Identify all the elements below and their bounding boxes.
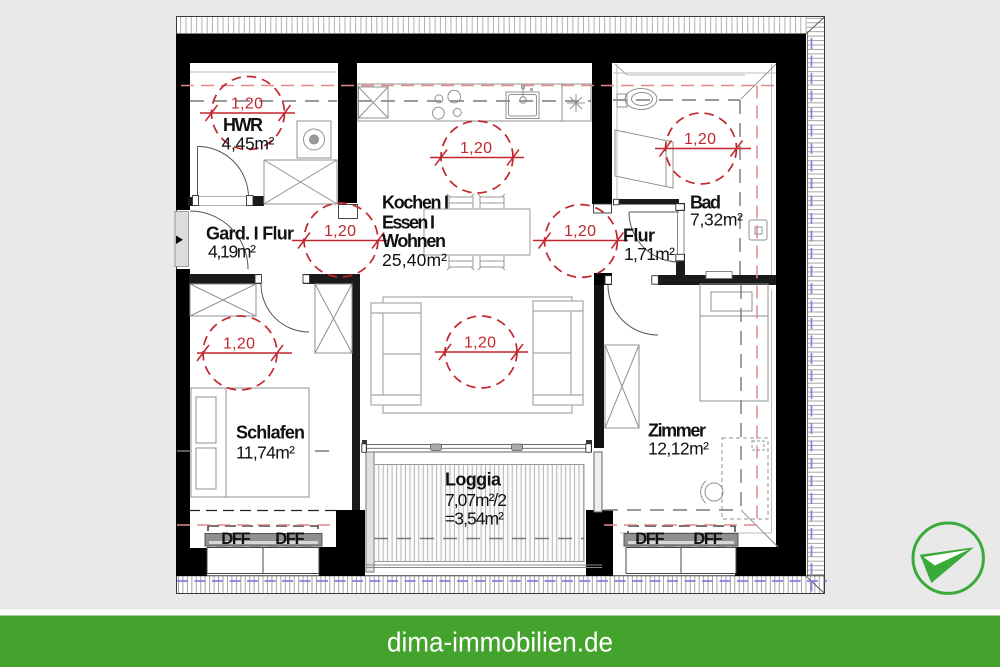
svg-text:Essen I: Essen I — [382, 213, 435, 233]
svg-text:1,71m²: 1,71m² — [624, 244, 675, 264]
svg-text:1,20: 1,20 — [684, 131, 716, 148]
svg-text:11,74m²: 11,74m² — [236, 443, 295, 463]
svg-text:7,32m²: 7,32m² — [690, 210, 743, 230]
svg-text:4,19m²: 4,19m² — [208, 242, 256, 262]
svg-text:Flur: Flur — [623, 226, 655, 246]
svg-text:Gard. I Flur: Gard. I Flur — [206, 224, 294, 244]
svg-text:1,20: 1,20 — [564, 223, 596, 240]
svg-text:=3,54m²: =3,54m² — [445, 509, 504, 529]
svg-text:Zimmer: Zimmer — [648, 421, 706, 441]
svg-text:DFF: DFF — [275, 530, 305, 548]
svg-text:DFF: DFF — [693, 530, 723, 548]
svg-text:25,40m²: 25,40m² — [382, 250, 447, 270]
svg-text:Schlafen: Schlafen — [236, 423, 305, 443]
svg-text:7,07m²/2: 7,07m²/2 — [445, 490, 507, 510]
svg-text:Wohnen: Wohnen — [382, 231, 446, 251]
svg-text:1,20: 1,20 — [223, 336, 255, 353]
svg-text:DFF: DFF — [221, 530, 251, 548]
svg-text:Loggia: Loggia — [445, 470, 502, 490]
svg-text:1,20: 1,20 — [460, 140, 492, 157]
svg-text:1,20: 1,20 — [231, 96, 263, 113]
svg-text:1,20: 1,20 — [464, 335, 496, 352]
svg-text:HWR: HWR — [223, 115, 263, 135]
svg-text:1,20: 1,20 — [324, 223, 356, 240]
svg-text:Kochen I: Kochen I — [382, 193, 449, 213]
svg-text:4,45m²: 4,45m² — [222, 134, 275, 154]
svg-text:dima-immobilien.de: dima-immobilien.de — [387, 627, 613, 658]
svg-text:DFF: DFF — [635, 530, 665, 548]
svg-text:12,12m²: 12,12m² — [648, 439, 709, 459]
